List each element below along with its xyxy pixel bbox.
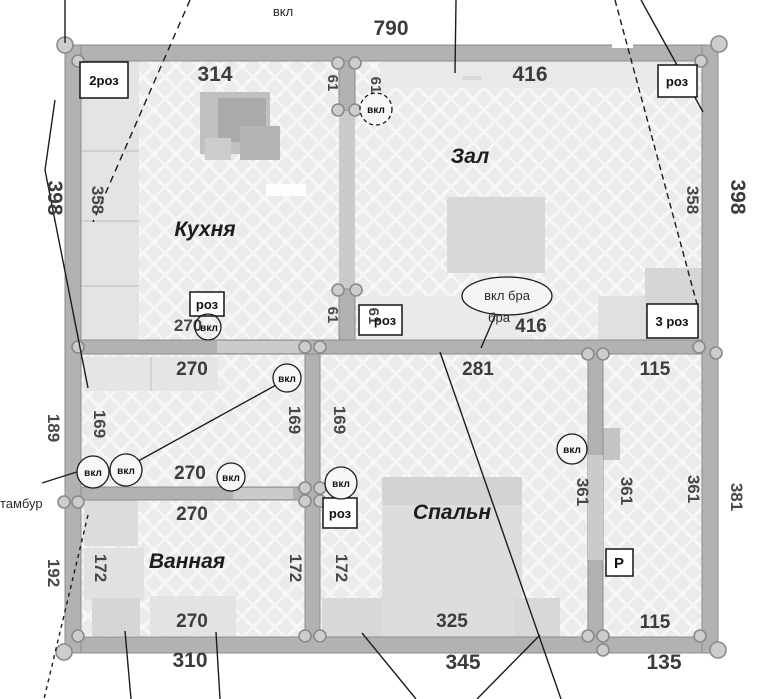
furniture-block: [598, 296, 645, 340]
floor-plan-drawing: 790 314 416 416 270 270 281 115 270 270 …: [0, 0, 782, 699]
switch-label: вкл: [332, 479, 350, 490]
sconce-switch-label: вкл бра: [484, 288, 531, 303]
wall-node: [349, 104, 361, 116]
dim-kitchen-left: 358: [88, 186, 107, 214]
wall-node: [693, 341, 705, 353]
switch-circle-living-top: вкл: [360, 93, 392, 125]
furniture-block: [81, 220, 139, 222]
dim-vestibule-top: 270: [176, 359, 208, 380]
kitchen-appliance: [240, 126, 280, 160]
socket-box-living-left: 61 роз: [359, 305, 402, 335]
socket-double-box: 2роз: [80, 62, 128, 98]
furniture-block: [81, 285, 139, 287]
wall-node: [349, 57, 361, 69]
wall-node: [582, 348, 594, 360]
window-top-wall: [612, 43, 633, 48]
switch-circle-bedroom-right: вкл: [557, 434, 587, 464]
wall-node: [710, 347, 722, 359]
dim-bathroom-outer-height: 192: [44, 559, 63, 587]
dim-loggia-top: 115: [640, 359, 671, 380]
furniture-block: [463, 76, 481, 80]
wall-node: [711, 36, 727, 52]
dim-bedroom-top: 281: [462, 359, 494, 380]
socket-label: роз: [666, 74, 689, 89]
kitchen-appliance: [205, 138, 231, 160]
socket-box-bedroom: роз: [323, 498, 357, 528]
dim-left-outer-height: 398: [43, 180, 66, 215]
bedroom-nightstand: [322, 598, 382, 637]
switch-label: вкл: [367, 105, 385, 116]
dim-vestibule-bottom: 270: [174, 463, 206, 484]
socket-label: роз: [196, 297, 219, 312]
socket-box-top-right: роз: [658, 65, 697, 97]
wall-node: [58, 496, 70, 508]
dim-living-width-bottom: 416: [515, 316, 547, 337]
wall-node: [72, 496, 84, 508]
wall-node: [597, 644, 609, 656]
switch-circle-vestibule-left-1: вкл: [77, 456, 109, 488]
wall-node: [299, 341, 311, 353]
dim-overall-width: 790: [373, 17, 408, 40]
floor-plan-canvas: 790 314 416 416 270 270 281 115 270 270 …: [0, 0, 782, 699]
wall-node: [710, 642, 726, 658]
opening-kitchen-living: [339, 111, 355, 289]
room-label-bathroom: Ванная: [149, 550, 225, 573]
switch-circle-bedroom-left: вкл: [325, 467, 357, 499]
switch-label: вкл: [563, 445, 581, 456]
wall-node: [597, 348, 609, 360]
room-label-vestibule: тамбур: [0, 496, 43, 511]
dim-outer-bottom-right: 135: [646, 651, 681, 674]
wall-node: [314, 482, 326, 494]
dim-bedroom-bottom: 325: [436, 611, 468, 632]
wall-node: [314, 630, 326, 642]
bathroom-washer: [92, 598, 140, 636]
socket-box-kitchen: роз: [190, 292, 224, 316]
dim-bedroom-upper-left: 169: [330, 406, 349, 434]
wall-node: [350, 284, 362, 296]
wall-node: [332, 284, 344, 296]
dim-vestibule-outer-height: 189: [44, 414, 63, 442]
dim-living-right: 358: [683, 186, 702, 214]
dim-bedroom-right: 361: [573, 478, 592, 506]
room-label-bedroom: Спальн: [413, 501, 491, 524]
window-bedroom-loggia: [588, 455, 603, 560]
wall-node: [299, 495, 311, 507]
switch-label: вкл: [84, 468, 102, 479]
switch-label: вкл: [222, 473, 240, 484]
switch-label: вкл: [117, 466, 135, 477]
dim-loggia-bottom: 115: [640, 612, 671, 633]
switch-label: вкл: [278, 374, 296, 385]
dim-outer-bottom-center: 345: [445, 651, 480, 674]
socket-triple-box: 3 роз: [647, 304, 698, 338]
room-label-kitchen: Кухня: [174, 218, 235, 241]
socket-triple-label: 3 роз: [655, 314, 689, 329]
wall-node: [694, 630, 706, 642]
socket-double-label: 2роз: [89, 73, 119, 88]
dim-vestibule-left: 169: [90, 410, 109, 438]
wall-node: [597, 630, 609, 642]
socket-label: роз: [329, 506, 352, 521]
furniture-block: [266, 184, 306, 196]
dim-bathroom-bottom: 270: [176, 611, 208, 632]
dim-wall-stub-bottom-left: 61: [324, 307, 341, 324]
wall-node: [332, 104, 344, 116]
living-table: [447, 197, 545, 273]
dim-loggia-left: 361: [617, 477, 636, 505]
dim-right-outer-height: 398: [726, 179, 749, 214]
wall-node: [72, 630, 84, 642]
panel-box: Р: [606, 549, 633, 576]
wall-node: [332, 57, 344, 69]
dim-wall-stub-top-right: 61: [367, 77, 384, 94]
dim-bathroom-top: 270: [176, 504, 208, 525]
dim-vestibule-right: 169: [285, 406, 304, 434]
wall-node: [314, 341, 326, 353]
bathroom-fixture: [84, 500, 138, 546]
dim-kitchen-width: 314: [197, 63, 232, 86]
wall-node: [56, 644, 72, 660]
switch-circle-vestibule-bottom: вкл: [217, 463, 245, 491]
furniture-block: [150, 357, 152, 391]
switch-circle-vestibule-right: вкл: [273, 364, 301, 392]
dim-bathroom-right: 172: [286, 554, 305, 582]
door-opening-bathroom: [233, 488, 293, 499]
dim-outer-bottom-left: 310: [172, 649, 207, 672]
socket-label: роз: [374, 313, 397, 328]
leader-line: [455, 0, 456, 73]
switch-circle-vestibule-left-2: вкл: [110, 454, 142, 486]
switch-label: вкл: [200, 323, 218, 334]
wall-bottom: [65, 637, 718, 653]
wall-node: [582, 630, 594, 642]
room-label-living: Зал: [451, 145, 490, 168]
wall-node: [299, 630, 311, 642]
dim-right-lower-outer-height: 381: [727, 483, 746, 511]
wall-node: [72, 341, 84, 353]
door-opening-vestibule: [217, 341, 300, 353]
dim-living-width: 416: [512, 63, 547, 86]
dim-loggia-right: 361: [684, 475, 703, 503]
furniture-block: [81, 150, 139, 152]
dim-wall-stub-top-left: 61: [324, 75, 341, 92]
wall-node: [299, 482, 311, 494]
panel-label: Р: [614, 555, 624, 572]
sconce-label: бра: [488, 310, 511, 325]
switch-label-top: вкл: [273, 4, 293, 19]
dim-bedroom-lower-left: 172: [332, 554, 351, 582]
dim-bathroom-left: 172: [91, 554, 110, 582]
